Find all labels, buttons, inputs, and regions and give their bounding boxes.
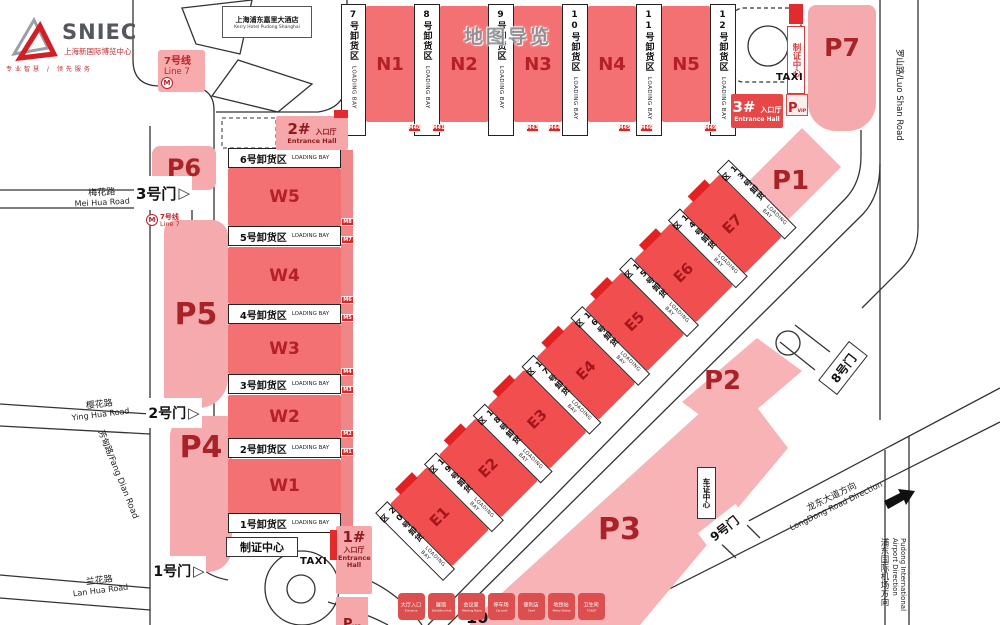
loading-bay-10: 10号卸货区 LOADING BAY bbox=[562, 4, 588, 136]
legend-item-entrance: 大厅入口 Entrance bbox=[398, 593, 425, 620]
m-label: M45 bbox=[618, 124, 631, 132]
legend-cn: 大厅入口 bbox=[401, 600, 421, 608]
legend-cn: 会议室 bbox=[464, 600, 479, 608]
loading-bay-11: 11号卸货区 LOADING BAY bbox=[636, 4, 662, 136]
gate-2: 2号门 ▷ bbox=[146, 398, 202, 428]
parking-p3-label: P3 bbox=[598, 512, 641, 547]
legend-en: TOILET bbox=[587, 609, 597, 612]
taxi-loop-top bbox=[748, 26, 788, 66]
bay-label-cn: 5号卸货区 bbox=[240, 229, 287, 244]
legend-item-car-park: 停车场 Car park bbox=[488, 593, 515, 620]
m-label: M41 bbox=[432, 124, 445, 132]
badge-center-top: 制证中心 bbox=[787, 26, 805, 94]
entrance-hall-2: 2# 入口厅 Entrance Hall bbox=[276, 116, 348, 150]
logo-brand-text: SNIEC bbox=[62, 20, 137, 44]
hotel-name-en: Kerry Hotel Pudong Shanghai bbox=[234, 25, 300, 30]
sniec-campus-map: SNIEC 上海新国际博览中心 专业智慧 / 领先服务 地图导览 上海浦东嘉里大… bbox=[0, 0, 1000, 625]
hall-w5: W5 bbox=[228, 168, 341, 226]
hall-label: W2 bbox=[269, 407, 300, 427]
map-watermark: 地图导览 bbox=[464, 22, 552, 49]
legend-cn: 停车场 bbox=[494, 600, 509, 608]
entrance-number: 3# bbox=[732, 98, 755, 116]
hall-label: E5 bbox=[621, 308, 648, 335]
legend-item-meeting-room: 会议室 Meeting Room bbox=[458, 593, 485, 620]
road-label-luoshan: 罗山路/Luo Shan Road bbox=[893, 35, 903, 155]
bay-label-en: LOADING BAY bbox=[646, 77, 652, 120]
entrance-en: Entrance Hall bbox=[731, 116, 783, 123]
metro-line-en: Line 7 bbox=[164, 67, 205, 77]
metro-icon: M bbox=[146, 214, 158, 226]
hall-label: W3 bbox=[269, 339, 300, 359]
badge-center-strip bbox=[789, 4, 803, 24]
hotel-name-cn: 上海浦东嘉里大酒店 bbox=[236, 15, 299, 25]
bay-label-cn: 8号卸货区 bbox=[421, 10, 434, 61]
bay-label-en: LOADING BAY bbox=[292, 381, 329, 387]
m-label: M46 bbox=[640, 124, 653, 132]
vip-parking-top: PVIP bbox=[786, 94, 808, 116]
entrance-hall-1: 1# 入口厅 Entrance Hall bbox=[336, 526, 372, 594]
road-name-cn: 浦东国际机场方向 bbox=[878, 538, 890, 625]
m-label: M43 bbox=[526, 124, 539, 132]
m-label: M44 bbox=[548, 124, 561, 132]
m-label: M5 bbox=[341, 314, 354, 322]
bay-label-cn: 2号卸货区 bbox=[240, 441, 287, 456]
legend-en: Metro Station bbox=[552, 609, 571, 612]
hall-label: E4 bbox=[572, 357, 599, 384]
gate-label: 3号门 bbox=[136, 183, 176, 204]
gate-arrow-icon: ▷ bbox=[193, 562, 205, 580]
road-label-airport: 浦东国际机场方向 Pudong International Airport Di… bbox=[878, 538, 907, 625]
lobby2-dashed-outline bbox=[222, 118, 276, 148]
loading-bay-4: 4号卸货区 LOADING BAY bbox=[228, 304, 341, 324]
taxi-label-top: TAXI bbox=[776, 72, 803, 83]
hall-label: E3 bbox=[523, 405, 550, 432]
parking-p1-label: P1 bbox=[772, 166, 809, 196]
legend-item-store: 便利店 Store bbox=[518, 593, 545, 620]
vip-parking-bottom: PVIP bbox=[336, 597, 368, 625]
kerry-hotel-label: 上海浦东嘉里大酒店 Kerry Hotel Pudong Shanghai bbox=[222, 6, 312, 38]
logo-tagline: 专业智慧 / 领先服务 bbox=[6, 64, 93, 73]
badge-center-bottom: 制证中心 bbox=[226, 537, 298, 557]
m-label: M49 bbox=[704, 124, 717, 132]
hall-w2: W2 bbox=[228, 395, 341, 438]
legend-cn: 地铁站 bbox=[554, 600, 569, 608]
gate-label: 2号门 bbox=[148, 403, 186, 423]
bay-label-cn: 1号卸货区 bbox=[240, 516, 287, 531]
gate-arrow-icon: ▷ bbox=[178, 184, 190, 202]
hall-label: N5 bbox=[672, 54, 700, 75]
hall-label: E6 bbox=[670, 259, 697, 286]
entrance-cn: 入口厅 bbox=[316, 128, 337, 136]
entrance-number: 1# bbox=[336, 530, 372, 545]
m-label: M2 bbox=[341, 430, 354, 438]
parking-label: P5 bbox=[175, 297, 218, 332]
bay-label-en: LOADING BAY bbox=[292, 155, 329, 161]
legend-item-metro-station: 地铁站 Metro Station bbox=[548, 593, 575, 620]
m-label: M7 bbox=[341, 236, 354, 244]
hall-label: W4 bbox=[269, 266, 300, 286]
metro-line7-station-left: M 7号线 Line 7 bbox=[146, 214, 180, 228]
gate-label: 1号门 bbox=[153, 561, 191, 581]
legend-en: Meeting Room bbox=[462, 609, 482, 612]
m-label: M1 bbox=[341, 448, 354, 456]
sniec-triangle-logo-icon bbox=[8, 14, 60, 64]
parking-label: P4 bbox=[180, 430, 223, 465]
hall-label: N1 bbox=[376, 54, 404, 75]
roundabout-small-east bbox=[776, 331, 800, 355]
loading-bay-1: 1号卸货区 LOADING BAY bbox=[228, 513, 341, 533]
hall-label: N2 bbox=[450, 54, 478, 75]
taxi-label-bottom: TAXI bbox=[300, 556, 327, 567]
bay-label-cn: 3号卸货区 bbox=[240, 377, 287, 392]
road-label-meihua: 梅花路 Mei Hua Road bbox=[62, 186, 143, 210]
entrance-hall-3: 3# 入口厅 Entrance Hall bbox=[731, 94, 783, 128]
gate-3: 3号门 ▷ bbox=[134, 176, 192, 210]
hall-label: E7 bbox=[719, 210, 746, 237]
bay-label-en: LOADING BAY bbox=[572, 77, 578, 120]
vip-p: P bbox=[788, 102, 798, 115]
parking-p7: P7 bbox=[808, 5, 876, 131]
m-label: M40 bbox=[408, 124, 421, 132]
hall-label: N3 bbox=[524, 54, 552, 75]
legend-en: Store bbox=[528, 609, 535, 612]
entrance-cn: 入口厅 bbox=[761, 106, 782, 114]
gate-arrow-icon: ▷ bbox=[188, 404, 200, 422]
m-label: M4 bbox=[341, 368, 354, 376]
metro-icon: M bbox=[161, 77, 173, 89]
bay-label-en: LOADING BAY bbox=[351, 66, 357, 109]
west-corridor bbox=[341, 150, 353, 534]
hall-n4: N4 bbox=[588, 6, 636, 122]
metro-line7-station-top: 7号线 Line 7 M bbox=[158, 50, 205, 92]
parking-p4: P4 bbox=[170, 416, 232, 572]
legend-en: Exhibition hall bbox=[432, 609, 451, 612]
loading-bay-2: 2号卸货区 LOADING BAY bbox=[228, 438, 341, 458]
legend-cn: 展馆 bbox=[436, 600, 446, 608]
entrance-number: 2# bbox=[287, 120, 310, 138]
legend-en: Entrance bbox=[405, 609, 417, 612]
bay-label-en: LOADING BAY bbox=[292, 520, 329, 526]
loading-bay-5: 5号卸货区 LOADING BAY bbox=[228, 226, 341, 246]
logo-brand-cn: 上海新国际博览中心 bbox=[64, 46, 132, 57]
hall-label: W1 bbox=[269, 476, 300, 496]
bay-label-cn: 12号卸货区 bbox=[717, 10, 730, 72]
legend-cn: 卫生间 bbox=[584, 600, 599, 608]
hall-w4: W4 bbox=[228, 247, 341, 304]
loading-bay-6: 6号卸货区 LOADING BAY bbox=[228, 148, 341, 168]
bay-label-cn: 7号卸货区 bbox=[347, 10, 360, 61]
loading-bay-8: 8号卸货区 LOADING BAY bbox=[414, 4, 440, 136]
bay-label-cn: 10号卸货区 bbox=[569, 10, 582, 72]
bay-label-en: LOADING BAY bbox=[292, 233, 329, 239]
gate-1: 1号门 ▷ bbox=[152, 556, 206, 586]
vip-label: VIP bbox=[798, 109, 806, 114]
bay-label-en: LOADING BAY bbox=[498, 66, 504, 109]
hotel-building-outline-2 bbox=[212, 60, 312, 112]
parking-p2-label: P2 bbox=[704, 366, 741, 396]
bay-label-en: LOADING BAY bbox=[292, 311, 329, 317]
hall-label: E1 bbox=[426, 503, 453, 530]
hall-w3: W3 bbox=[228, 324, 341, 374]
bay-label-en: LOADING BAY bbox=[424, 66, 430, 109]
bay-label-en: LOADING BAY bbox=[292, 445, 329, 451]
vehicle-permit-center: 车证中心 bbox=[697, 467, 716, 519]
longdong-direction-arrow-icon bbox=[884, 489, 915, 509]
bay-label-cn: 11号卸货区 bbox=[643, 10, 656, 72]
entrance-en: Entrance Hall bbox=[276, 138, 348, 145]
legend-cn: 便利店 bbox=[524, 600, 539, 608]
road-name-en: Pudong International Airport Direction bbox=[891, 538, 907, 625]
loading-bay-3: 3号卸货区 LOADING BAY bbox=[228, 374, 341, 394]
entrance-1-marker bbox=[330, 530, 337, 560]
legend-item-exhibition-hall: 展馆 Exhibition hall bbox=[428, 593, 455, 620]
entrance-2-marker bbox=[334, 110, 348, 118]
metro-line-cn: 7号线 bbox=[164, 52, 205, 67]
metro-line-en: Line 7 bbox=[160, 221, 180, 228]
hall-n1: N1 bbox=[366, 6, 414, 122]
hall-label: N4 bbox=[598, 54, 626, 75]
bay-label-cn: 6号卸货区 bbox=[240, 151, 287, 166]
m-label: M3 bbox=[341, 386, 354, 394]
bay-label-en: LOADING BAY bbox=[720, 77, 726, 120]
vip-p: P bbox=[343, 618, 353, 625]
legend-item-toilet: 卫生间 TOILET bbox=[578, 593, 605, 620]
m-label: M6 bbox=[341, 296, 354, 304]
hall-w1: W1 bbox=[228, 459, 341, 513]
parking-p5: P5 bbox=[164, 220, 228, 408]
bay-label-cn: 4号卸货区 bbox=[240, 307, 287, 322]
m-label: M8 bbox=[341, 218, 354, 226]
hall-n5: N5 bbox=[662, 6, 710, 122]
entrance-en: Entrance Hall bbox=[336, 555, 372, 570]
sniec-logo: SNIEC 上海新国际博览中心 专业智慧 / 领先服务 bbox=[6, 12, 156, 76]
vehicle-center-label: 车证中心 bbox=[701, 478, 712, 508]
roundabout-inner bbox=[287, 575, 315, 603]
parking-label: P7 bbox=[824, 33, 860, 62]
legend-en: Car park bbox=[496, 609, 508, 612]
hall-label: W5 bbox=[269, 187, 300, 207]
hall-label: E2 bbox=[475, 454, 502, 481]
